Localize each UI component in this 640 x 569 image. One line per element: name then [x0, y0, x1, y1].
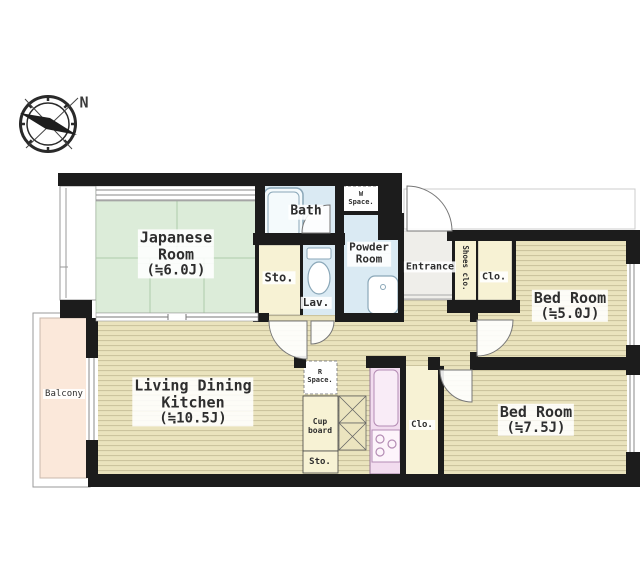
label-bath: Bath — [288, 205, 323, 220]
label-entrance: Entrance — [404, 261, 456, 272]
window-bedroom75 — [627, 375, 638, 452]
label-lavatory: Lav. — [301, 297, 332, 309]
label-cupboard: Cup board — [306, 418, 334, 436]
toilet-icon — [307, 248, 331, 294]
floor-plan: N Japanese Room (≒6.0J) Bath W Space. Po… — [0, 0, 640, 569]
kitchen-sink-icon — [374, 370, 398, 426]
compass-icon — [19, 95, 78, 153]
label-balcony: Balcony — [43, 389, 85, 399]
sliding-door-japanese-ldk — [96, 313, 258, 321]
kitchen-counter — [370, 364, 402, 474]
compass-north-label: N — [77, 95, 90, 112]
label-storage-kitchen: Sto. — [307, 457, 333, 467]
label-powder-room: Powder Room — [347, 242, 391, 267]
label-washer-space: W Space. — [346, 191, 375, 207]
floor-plan-svg — [0, 0, 640, 569]
window-ldk-balcony — [86, 358, 98, 440]
label-bedroom-75: Bed Room (≒7.5J) — [498, 404, 574, 436]
label-fridge-space: R Space. — [305, 369, 334, 385]
bay-window-strip — [60, 186, 96, 300]
label-closet-top: Clo. — [480, 271, 508, 282]
window-bedroom5 — [627, 264, 638, 345]
label-japanese-room: Japanese Room (≒6.0J) — [138, 229, 214, 278]
stove-icon — [372, 430, 400, 462]
label-storage-wash: Sto. — [263, 271, 296, 284]
kitchen-hatch-counter — [339, 396, 366, 450]
label-ldk: Living Dining Kitchen (≒10.5J) — [132, 377, 253, 426]
label-shoes-closet: Shoes clo. — [461, 243, 469, 292]
label-closet-bottom: Clo. — [409, 420, 435, 430]
label-bedroom-5: Bed Room (≒5.0J) — [532, 290, 608, 322]
room-balcony — [33, 313, 90, 487]
window-japanese-top — [96, 186, 258, 201]
powder-sink-icon — [368, 276, 398, 314]
room-closet-top — [478, 237, 512, 300]
